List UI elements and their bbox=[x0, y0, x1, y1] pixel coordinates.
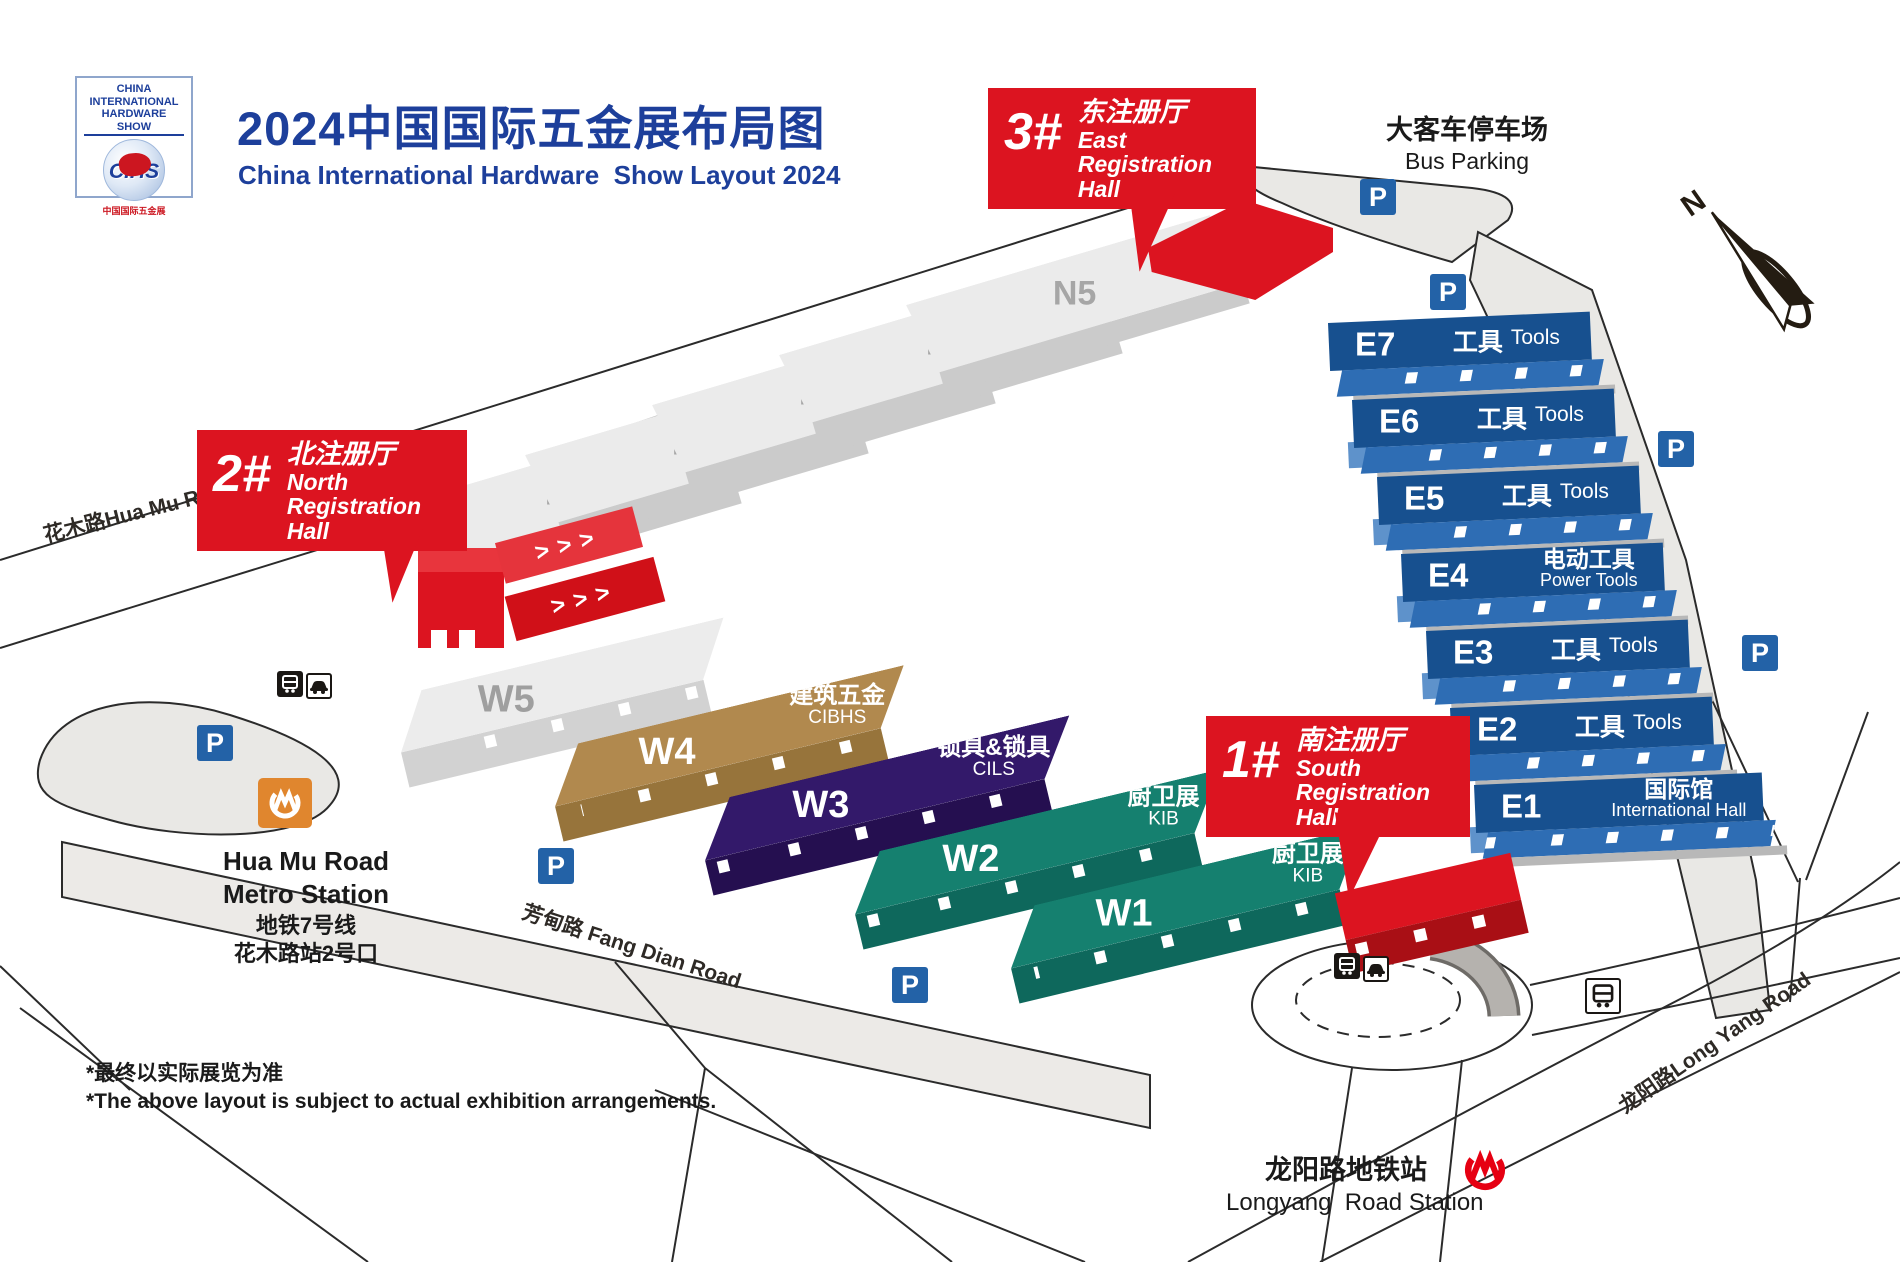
compass-icon: N bbox=[1673, 172, 1821, 337]
parking-icon: P bbox=[1430, 274, 1466, 310]
hall-id: E7 bbox=[1355, 325, 1427, 363]
callout-en: South Registration Hall bbox=[1296, 756, 1456, 828]
globe-icon: CIHS bbox=[103, 139, 165, 201]
hall-id: W3 bbox=[792, 784, 849, 827]
hall-sub-label: 建筑五金 CIBHS bbox=[789, 683, 885, 728]
disclaimer: *最终以实际展览为准 *The above layout is subject … bbox=[86, 1060, 716, 1117]
bus-parking-label: 大客车停车场 Bus Parking bbox=[1362, 108, 1572, 175]
callout-zh: 南注册厅 bbox=[1296, 726, 1456, 754]
hall-label-zh: 工具 bbox=[1477, 399, 1527, 435]
hall-label-en: Power Tools bbox=[1514, 571, 1664, 590]
callout-number: 3# bbox=[1004, 106, 1062, 158]
longyang-station-label: 龙阳路地铁站 Longyang Road Station bbox=[1226, 1148, 1466, 1217]
hall-sub-label: 厨卫展 KIB bbox=[1272, 841, 1344, 886]
callout-east-registration: 3# 东注册厅 East Registration Hall bbox=[988, 88, 1256, 209]
hall-id: E3 bbox=[1453, 633, 1525, 671]
callout-en: North Registration Hall bbox=[287, 470, 453, 542]
hall-id: E2 bbox=[1477, 710, 1549, 748]
parking-icon: P bbox=[892, 967, 928, 1003]
page-title-zh: 2024中国国际五金展布局图 bbox=[237, 90, 826, 159]
logo-zh: 中国国际五金展 bbox=[77, 204, 191, 217]
hall-id: E1 bbox=[1501, 787, 1573, 825]
hall-label-en: Tools bbox=[1633, 711, 1682, 735]
hall-id: E4 bbox=[1428, 556, 1500, 594]
hall-label-en: Tools bbox=[1535, 403, 1584, 427]
hall-label-zh: 工具 bbox=[1575, 707, 1625, 743]
hall-id: W4 bbox=[639, 731, 696, 774]
hall-label-en: International Hall bbox=[1599, 801, 1759, 820]
hall-id: W5 bbox=[478, 678, 535, 721]
hall-label-zh: 工具 bbox=[1453, 322, 1503, 358]
callout-number: 2# bbox=[213, 448, 271, 500]
exhibition-layout-map: N CHINA INTERNATIONAL HARDWARE SHOW CIHS… bbox=[0, 0, 1900, 1262]
callout-number: 1# bbox=[1222, 734, 1280, 786]
hall-sub-label: 锁具&锁具 CILS bbox=[937, 735, 1050, 780]
hall-label-zh: 电动工具 bbox=[1514, 547, 1664, 571]
hall-id: N5 bbox=[1053, 274, 1096, 313]
bus-icon bbox=[1334, 953, 1360, 979]
bus-icon bbox=[277, 671, 303, 697]
hall-label-en: Tools bbox=[1609, 634, 1658, 658]
hall-sub-label: 厨卫展 KIB bbox=[1127, 785, 1199, 830]
logo-line1: CHINA INTERNATIONAL bbox=[77, 83, 191, 108]
hall-label-en: Tools bbox=[1511, 326, 1560, 350]
callout-zh: 北注册厅 bbox=[287, 440, 453, 468]
hall-label-zh: 工具 bbox=[1551, 630, 1601, 666]
parking-icon: P bbox=[1742, 635, 1778, 671]
hall-label-zh: 国际馆 bbox=[1599, 777, 1759, 801]
metro-icon-huamu bbox=[258, 778, 312, 828]
bus-stop-icon bbox=[1585, 978, 1621, 1014]
huamu-station-label: Hua Mu Road Metro Station 地铁7号线 花木路站2号口 bbox=[196, 845, 416, 968]
north-registration-building bbox=[418, 548, 504, 648]
parking-icon: P bbox=[1360, 179, 1396, 215]
callout-zh: 东注册厅 bbox=[1078, 98, 1242, 126]
callout-north-registration: 2# 北注册厅 North Registration Hall bbox=[197, 430, 467, 551]
parking-icon: P bbox=[538, 848, 574, 884]
hall-label-en: Tools bbox=[1560, 480, 1609, 504]
hall-id: W2 bbox=[942, 838, 999, 881]
car-icon bbox=[1363, 956, 1389, 982]
callout-south-registration: 1# 南注册厅 South Registration Hall bbox=[1206, 716, 1470, 837]
show-logo: CHINA INTERNATIONAL HARDWARE SHOW CIHS 中… bbox=[75, 76, 193, 198]
logo-line2: HARDWARE SHOW bbox=[84, 108, 184, 135]
parking-icon: P bbox=[197, 725, 233, 761]
logo-cihs: CIHS bbox=[104, 160, 164, 184]
metro-logo-longyang bbox=[1461, 1146, 1509, 1194]
hall-id: E5 bbox=[1404, 479, 1476, 517]
page-title-en: China International Hardware Show Layout… bbox=[238, 160, 840, 191]
car-icon bbox=[306, 673, 332, 699]
hall-label-zh: 工具 bbox=[1502, 476, 1552, 512]
hall-id: W1 bbox=[1095, 893, 1152, 936]
hall-id: E6 bbox=[1379, 402, 1451, 440]
hall-e1: E1 国际馆 International Hall bbox=[1474, 772, 1765, 867]
compass-north-label: N bbox=[1675, 184, 1712, 223]
parking-icon: P bbox=[1658, 431, 1694, 467]
